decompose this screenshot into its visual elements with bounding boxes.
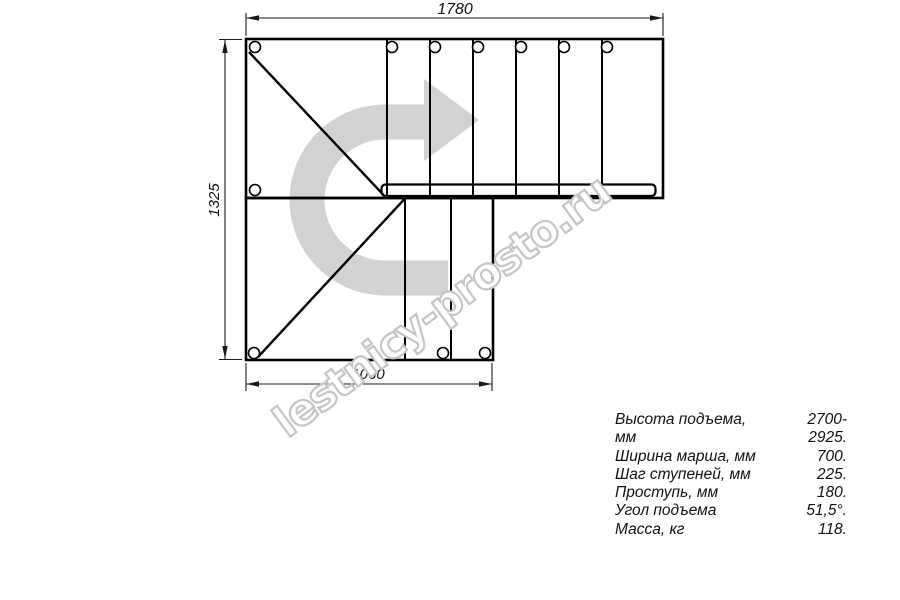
post-circle [438, 348, 449, 359]
dimension-left-label: 1325 [206, 183, 223, 217]
spec-row-height: Высота подъема, мм 2700-2925. [615, 411, 847, 448]
post-circle [250, 42, 261, 53]
dimension-arrowhead [222, 346, 227, 359]
post-circle [249, 348, 260, 359]
spec-value: 51,5°. [806, 502, 847, 520]
post-circle [480, 348, 491, 359]
spec-label: Шаг ступеней, мм [615, 466, 751, 484]
dimension-top-label: 1780 [437, 1, 473, 18]
post-circle [387, 42, 398, 53]
post-circle [602, 42, 613, 53]
spec-row-tread: Проступь, мм 180. [615, 484, 847, 502]
spec-label: Ширина марша, мм [615, 448, 756, 466]
staircase-drawing-page: 1780 1325 1060 lestnicy-prosto.ru Высота… [0, 0, 900, 600]
direction-arrow-head [424, 79, 479, 161]
direction-arrow-curve [290, 105, 386, 296]
direction-arrow-top-bar [384, 105, 424, 140]
spec-label: Проступь, мм [615, 484, 718, 502]
spec-row-angle: Угол подъема 51,5°. [615, 502, 847, 520]
stringer-band [382, 185, 656, 197]
spec-label: Угол подъема [615, 502, 716, 520]
spec-value: 700. [817, 448, 847, 466]
post-circle [250, 185, 261, 196]
winder-diagonals [249, 52, 405, 357]
post-circle [559, 42, 570, 53]
spec-label: Масса, кг [615, 521, 684, 539]
post-circle [516, 42, 527, 53]
spec-row-mass: Масса, кг 118. [615, 521, 847, 539]
dimension-arrowhead [650, 15, 663, 20]
dimension-arrowhead [246, 15, 259, 20]
spec-value: 225. [817, 466, 847, 484]
spec-label: Высота подъема, мм [615, 411, 770, 448]
spec-value: 2700-2925. [770, 411, 847, 448]
specs-table: Высота подъема, мм 2700-2925. Ширина мар… [615, 411, 847, 539]
dimension-arrowhead [222, 40, 227, 53]
post-circle [430, 42, 441, 53]
dimension-arrowhead [246, 381, 259, 386]
spec-value: 180. [817, 484, 847, 502]
spec-value: 118. [818, 521, 847, 539]
dimension-arrowhead [479, 381, 492, 386]
spec-row-step-pitch: Шаг ступеней, мм 225. [615, 466, 847, 484]
post-circle [473, 42, 484, 53]
spec-row-march-width: Ширина марша, мм 700. [615, 448, 847, 466]
